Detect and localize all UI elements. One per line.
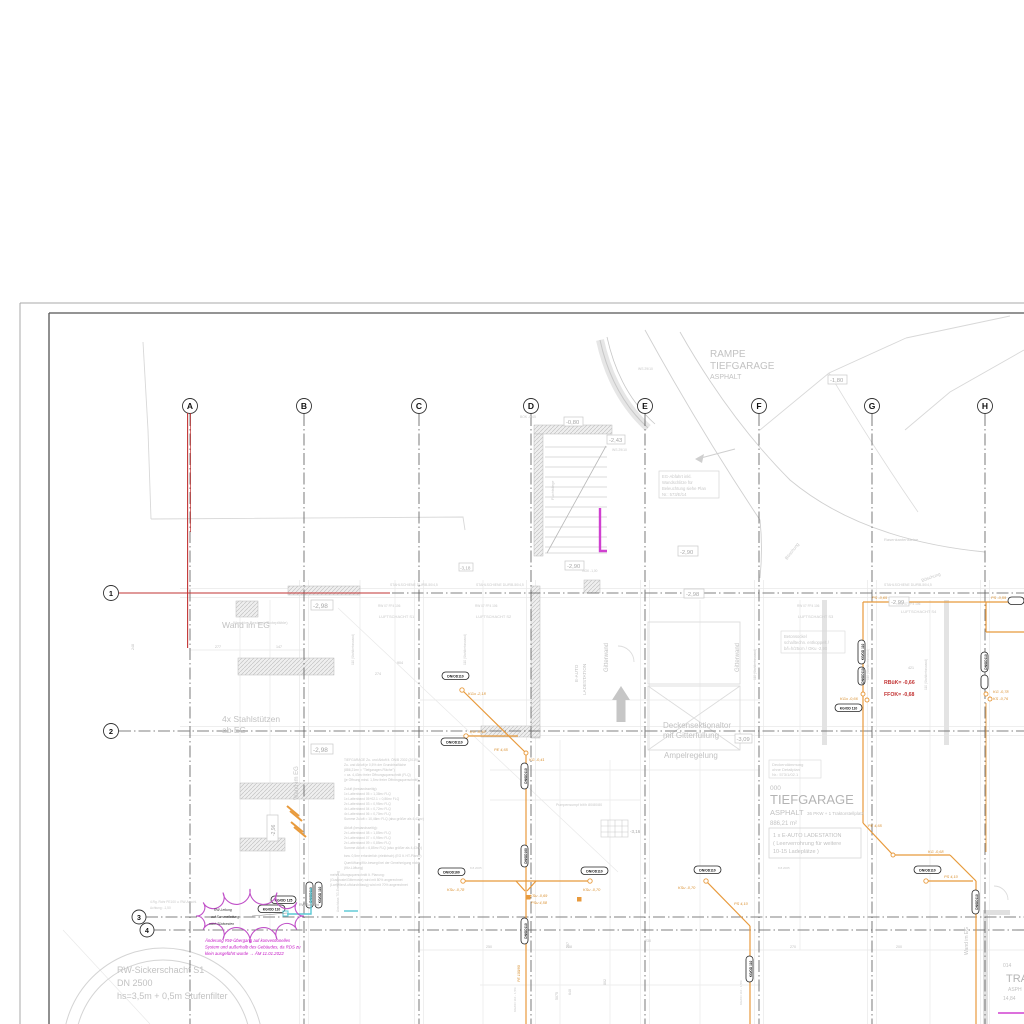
- svg-text:250: 250: [486, 945, 492, 949]
- svg-text:RW 07 FF4 106: RW 07 FF4 106: [475, 604, 498, 608]
- grating-elevation: -3,16: [630, 829, 641, 834]
- svg-text:421: 421: [908, 666, 914, 670]
- svg-text:277: 277: [215, 645, 221, 649]
- svg-text:Böschung: Böschung: [921, 571, 942, 583]
- svg-text:-0,80: -0,80: [566, 420, 579, 426]
- construction-lines: [63, 580, 1024, 1024]
- svg-text:PSu 4,58: PSu 4,58: [531, 900, 548, 905]
- svg-text:KG/OD 110 - 1,5%: KG/OD 110 - 1,5%: [739, 980, 743, 1005]
- svg-text:DN/OD110: DN/OD110: [447, 675, 464, 679]
- svg-text:PS -0,59: PS -0,59: [991, 595, 1007, 600]
- svg-text:110 (Stahlbetonwand): 110 (Stahlbetonwand): [753, 649, 757, 680]
- revision-note: Änderung RW-Übergang auf konventionelles…: [204, 938, 301, 956]
- label-rampe-3: ASPHALT: [710, 374, 742, 381]
- svg-text:-2,98: -2,98: [313, 747, 328, 754]
- svg-text:nach Südwesten: nach Südwesten: [209, 922, 234, 926]
- svg-text:Nr.: 573/E/14: Nr.: 573/E/14: [662, 492, 687, 497]
- label-luftschacht-s1: LUFTSCHACHT S1: [379, 614, 415, 619]
- label-pumpensumpf: Pumpensumpf b/t/h 80/80/80: [556, 803, 602, 807]
- grid-axis-4: 4: [145, 928, 149, 935]
- svg-text:Zuluft (bestandsseitig):: Zuluft (bestandsseitig):: [344, 787, 377, 791]
- svg-text:8.8.2005: 8.8.2005: [778, 866, 790, 870]
- label-eauto-rot1: E-AUTO: [574, 664, 579, 682]
- svg-text:KG/OD 110 - 1,5%: KG/OD 110 - 1,5%: [513, 987, 517, 1012]
- svg-text:PS 4,10: PS 4,10: [944, 874, 959, 879]
- floor-grating: [601, 820, 628, 837]
- svg-text:DN/OD110: DN/OD110: [919, 869, 936, 873]
- ramp-direction-arrow: [695, 454, 704, 463]
- svg-text:PE 4,65: PE 4,65: [494, 747, 509, 752]
- svg-text:RW 07 FF4 106: RW 07 FF4 106: [898, 602, 921, 606]
- svg-text:b/l=h/25cm / OKu -2,90: b/l=h/25cm / OKu -2,90: [784, 646, 828, 651]
- svg-text:(Kfz-Lüftung): (Kfz-Lüftung): [344, 866, 363, 870]
- room014-name: TRA: [1006, 973, 1024, 985]
- svg-text:Beleuchtung siehe Plan: Beleuchtung siehe Plan: [662, 486, 707, 491]
- svg-text:-2,96: -2,96: [271, 824, 277, 836]
- room-surface: ASPHALT: [770, 808, 804, 817]
- svg-text:110 (Stahlbetonwand): 110 (Stahlbetonwand): [924, 659, 928, 690]
- label-bestand: Wand im Bestand (Bohrpfähle): [233, 620, 288, 625]
- svg-text:Summe Zuluft = 10,46m² FLQ (al: Summe Zuluft = 10,46m² FLQ (also größer …: [344, 817, 424, 821]
- label-rampe-2: TIEFGARAGE: [710, 361, 775, 372]
- svg-text:PE 100/90: PE 100/90: [517, 965, 521, 982]
- svg-text:DN/OD110: DN/OD110: [975, 894, 979, 910]
- label-rampe-1: RAMPE: [710, 349, 746, 360]
- svg-text:Wandschlitze für: Wandschlitze für: [662, 480, 693, 485]
- tor-2: mit Gitterfüllung: [663, 731, 719, 740]
- label-sickerschacht-1: RW-Sickerschacht S1: [117, 965, 204, 975]
- svg-text:707: 707: [566, 942, 570, 948]
- svg-text:(886,21m² = "Tiefgaragen-Fläch: (886,21m² = "Tiefgaragen-Fläche"): [344, 768, 395, 772]
- svg-text:-2,90: -2,90: [567, 564, 580, 570]
- svg-text:270: 270: [790, 945, 796, 949]
- svg-text:TIEFGARAGE Zu- und Abluft lt.: TIEFGARAGE Zu- und Abluft lt. ÖN/B 2302 …: [344, 758, 419, 762]
- eauto-3: 10-15 Ladeplätze ): [773, 849, 819, 855]
- svg-text:802: 802: [603, 979, 607, 985]
- room-area: 886,21 m²: [770, 821, 797, 827]
- svg-text:-1,80: -1,80: [830, 378, 843, 384]
- svg-text:KG/OD 110: KG/OD 110: [749, 961, 753, 978]
- svg-text:PS -0,65: PS -0,65: [872, 595, 888, 600]
- svg-text:RW-Leitung: RW-Leitung: [214, 908, 232, 912]
- svg-text:RW 07 FF4 106: RW 07 FF4 106: [378, 604, 401, 608]
- svg-text:WS 29/10: WS 29/10: [638, 367, 653, 371]
- svg-text:KG/OD 110: KG/OD 110: [263, 908, 281, 912]
- svg-text:274: 274: [375, 672, 381, 676]
- eauto-1: 1 x E-AUTO LADESTATION: [773, 833, 841, 839]
- grid-axis-g: G: [869, 401, 876, 411]
- svg-text:Abluft (bestandsseitig):: Abluft (bestandsseitig):: [344, 826, 378, 830]
- label-wand-eg-rot: Wand im EG: [294, 766, 300, 800]
- room014-area: 14,84: [1003, 996, 1016, 1002]
- svg-text:2x Lattenband 03 = 0,95m² FLQ: 2x Lattenband 03 = 0,95m² FLQ: [344, 802, 391, 806]
- svg-text:Querlüftung/Kfz-bewegt bei der: Querlüftung/Kfz-bewegt bei der Genehmigu…: [344, 861, 419, 865]
- svg-text:KG -0,49: KG -0,49: [470, 729, 486, 734]
- svg-text:Nr.: 573/1/02.1: Nr.: 573/1/02.1: [772, 772, 799, 777]
- svg-text:RBüK= -0,66: RBüK= -0,66: [884, 680, 915, 686]
- svg-text:-3,09: -3,09: [737, 737, 750, 743]
- svg-text:EG-Abfahrt inkl.: EG-Abfahrt inkl.: [662, 474, 692, 479]
- room014-num: 014: [1003, 963, 1012, 969]
- room014-surface: ASPH: [1008, 987, 1022, 993]
- eauto-2: ( Leerverrohrung für weitere: [773, 841, 841, 847]
- svg-text:1x Lattenband 05 = 1,38m² FLQ: 1x Lattenband 05 = 1,38m² FLQ: [344, 792, 391, 796]
- svg-text:Summe Abluft = 6,85m² FLQ (als: Summe Abluft = 6,85m² FLQ (also größer a…: [344, 846, 422, 850]
- grid-axis-1: 1: [109, 589, 113, 598]
- label-fluchtstiege: Fluchtstiege: [551, 481, 555, 500]
- svg-text:5075: 5075: [555, 992, 559, 1000]
- svg-text:2x Lattenband 09 = 0,85m² FLQ: 2x Lattenband 09 = 0,85m² FLQ: [344, 841, 391, 845]
- floorplan-canvas: -3,16 A B C D E F G H 1 2 3 4: [0, 0, 1024, 1024]
- svg-text:230: 230: [645, 939, 651, 943]
- grid-axis-b: B: [301, 401, 307, 411]
- svg-text:2x Lattenband 07 = 0,95m² FLQ: 2x Lattenband 07 = 0,95m² FLQ: [344, 836, 391, 840]
- walls: [236, 425, 1010, 1024]
- sickerschacht-circle: [63, 948, 263, 1024]
- svg-text:KG -0,68: KG -0,68: [928, 849, 944, 854]
- tor-1: Deckensektionaltor: [663, 721, 731, 730]
- svg-text:4x Lattenband 04 = 0,72m² FLQ: 4x Lattenband 04 = 0,72m² FLQ: [344, 807, 391, 811]
- svg-text:KSu -0,70: KSu -0,70: [583, 887, 601, 892]
- svg-text:DN/OD110: DN/OD110: [446, 741, 463, 745]
- label-gitterwand-r: Gitterwand: [735, 643, 741, 672]
- svg-text:KG/OD 110: KG/OD 110: [318, 887, 322, 904]
- svg-text:DN/OD110: DN/OD110: [524, 768, 528, 784]
- svg-text:Zu- und Abluft je 0,5% der Gru: Zu- und Abluft je 0,5% der Grundrissfläc…: [344, 763, 406, 767]
- svg-text:(Gussroste/Gitterroste) wird m: (Gussroste/Gitterroste) wird mit 80% ang…: [330, 878, 403, 882]
- label-luftschacht-s4: LUFTSCHACHT S4: [901, 609, 937, 614]
- svg-text:STAHLSCHIENE DU/RB-50/4,5: STAHLSCHIENE DU/RB-50/4,5: [476, 583, 524, 587]
- svg-text:bzw. 0,5m³ erforderlich (elekt: bzw. 0,5m³ erforderlich (elektrisch) (EG…: [344, 854, 422, 858]
- svg-text:KGu -0,66: KGu -0,66: [840, 696, 859, 701]
- label-rw-schacht: RW-Schacht: [299, 903, 319, 907]
- label-sickerschacht-2: DN 2500: [117, 978, 153, 988]
- svg-text:RW 07 FF4 106: RW 07 FF4 106: [797, 604, 820, 608]
- label-luftschacht-s2: LUFTSCHACHT S2: [476, 614, 512, 619]
- svg-text:BOK -0,45: BOK -0,45: [520, 415, 536, 419]
- svg-text:-2,90: -2,90: [680, 550, 693, 556]
- svg-text:248: 248: [131, 644, 135, 650]
- grid-axis-c: C: [416, 401, 422, 411]
- svg-text:KS -0,76: KS -0,76: [993, 696, 1009, 701]
- red-annotations: RBüK= -0,66 FFOK= -0,68: [884, 680, 915, 698]
- room-number: 000: [770, 785, 781, 792]
- label-rasenkante: Rasenkantensteine: [884, 537, 919, 542]
- svg-text:147: 147: [276, 645, 282, 649]
- svg-text:DN/OD110: DN/OD110: [586, 870, 603, 874]
- svg-text:8.8.2005: 8.8.2005: [470, 866, 482, 870]
- label-eauto-rot2: LADESTATION: [582, 664, 587, 695]
- label-luftschacht-s3: LUFTSCHACHT S3: [798, 614, 834, 619]
- svg-text:200: 200: [896, 945, 902, 949]
- grid-axis-f: F: [756, 401, 761, 411]
- svg-text:PE 4,65: PE 4,65: [868, 823, 883, 828]
- svg-text:-2,43: -2,43: [609, 438, 622, 444]
- svg-text:STAHLSCHIENE DU/RB-50/4,5: STAHLSCHIENE DU/RB-50/4,5: [884, 583, 932, 587]
- svg-text:DN/OD160: DN/OD160: [443, 871, 460, 875]
- svg-text:DN/OD110: DN/OD110: [861, 668, 865, 684]
- svg-text:-2,98: -2,98: [686, 592, 699, 598]
- svg-text:-2,98: -2,98: [313, 603, 328, 610]
- svg-text:KSu -0,78: KSu -0,78: [447, 887, 465, 892]
- svg-text:Achtung: -1,50: Achtung: -1,50: [150, 906, 171, 910]
- svg-text:DN/OD110: DN/OD110: [984, 654, 988, 670]
- site-boundary-lines: [143, 316, 1024, 530]
- svg-text:STAHLSCHIENE DU/RB-50/4,5: STAHLSCHIENE DU/RB-50/4,5: [390, 583, 438, 587]
- svg-text:auf Sammelleitung: auf Sammelleitung: [211, 915, 239, 919]
- grid-axis-h: H: [982, 401, 988, 411]
- grid-axis-e: E: [642, 401, 648, 411]
- svg-text:System und außerhalb des Gebäu: System und außerhalb des Gebäudes, da RD…: [205, 945, 301, 950]
- label-sickerschacht-3: hs=3,5m + 0,5m Stufenfilter: [117, 991, 228, 1001]
- svg-text:640: 640: [568, 989, 572, 995]
- svg-text:DN/OD110: DN/OD110: [524, 923, 528, 939]
- svg-text:-3,18: -3,18: [460, 566, 471, 571]
- drive-direction-arrow: [612, 686, 630, 722]
- ramp-curves: [600, 330, 985, 578]
- svg-text:KSu -0,70: KSu -0,70: [678, 885, 696, 890]
- svg-text:DN/OD110: DN/OD110: [699, 869, 716, 873]
- room-cars: 36 PKW + 1 Traktorstellplatz: [807, 811, 865, 816]
- svg-text:(Lamellen/Luftdurchlässig) wir: (Lamellen/Luftdurchlässig) wird mit 70% …: [330, 883, 408, 887]
- room-name: TIEFGARAGE: [770, 792, 854, 807]
- svg-text:= ca. 4,43m² freier Öffnungsqu: = ca. 4,43m² freier Öffnungsquerschnitt …: [344, 773, 411, 777]
- svg-text:110 (Stahlbetonwand): 110 (Stahlbetonwand): [463, 634, 467, 665]
- svg-text:4.Rg. Rohr PE100 u. RW-Anschl.: 4.Rg. Rohr PE100 u. RW-Anschl.: [150, 900, 197, 904]
- svg-text:904: 904: [397, 661, 403, 665]
- svg-text:klein ausgeführt wurde → ÄM 11: klein ausgeführt wurde → ÄM 11.01.2022: [205, 951, 284, 956]
- tor-3: Ampelregelung: [664, 751, 718, 760]
- pipe-gray-notes: KG/OD 110 - 1,5% KG/OD 110 - 1,5% 8.8.20…: [470, 866, 790, 1012]
- svg-text:WS 29/10: WS 29/10: [612, 448, 627, 452]
- svg-text:KSu -0,69: KSu -0,69: [530, 893, 548, 898]
- svg-text:FFOK= -0,68: FFOK= -0,68: [884, 692, 915, 698]
- svg-text:KG -0,41: KG -0,41: [529, 757, 545, 762]
- grid-axis-3: 3: [137, 915, 141, 922]
- svg-text:DN/OD160: DN/OD160: [524, 848, 528, 864]
- label-stuetzen-1: 4x Stahlstützen: [222, 714, 280, 724]
- svg-text:Betonsockel: Betonsockel: [784, 634, 807, 639]
- label-wand-eg-rot2: Wand im EG: [964, 927, 970, 955]
- svg-text:mehr Lüftungsquerschnitt lt. P: mehr Lüftungsquerschnitt lt. Planung:: [330, 873, 385, 877]
- label-stuetzen-2: ab EG: [222, 725, 246, 735]
- svg-text:(je Öffnung mind. 1,5m² freier: (je Öffnung mind. 1,5m² freier Öffnungsq…: [344, 778, 418, 782]
- grid-axis-2: 2: [109, 727, 113, 736]
- svg-text:Änderung RW-Übergang auf konve: Änderung RW-Übergang auf konventionelles: [204, 938, 291, 943]
- svg-text:110 (Stahlbetonwand): 110 (Stahlbetonwand): [351, 634, 355, 665]
- cloud-note: RW-Leitung auf Sammelleitung nach Südwes…: [209, 908, 239, 926]
- svg-text:mOK -1,00: mOK -1,00: [582, 569, 598, 573]
- grid-axis-d: D: [528, 401, 534, 411]
- svg-text:1x Lattenband 05+02.1 = 0,86m²: 1x Lattenband 05+02.1 = 0,86m² FLQ: [344, 797, 400, 801]
- svg-text:PS 4,10: PS 4,10: [734, 901, 749, 906]
- svg-text:4x Lattenband 06 = 0,70m² FLQ: 4x Lattenband 06 = 0,70m² FLQ: [344, 812, 391, 816]
- svg-text:Böschung: Böschung: [784, 541, 801, 560]
- svg-text:KG/OD 110: KG/OD 110: [840, 707, 858, 711]
- svg-text:KG -0,78: KG -0,78: [993, 689, 1009, 694]
- grid-axis-a: A: [187, 401, 193, 411]
- label-gitterwand-l: Gitterwand: [604, 643, 610, 672]
- svg-text:KGu -2,18: KGu -2,18: [468, 691, 487, 696]
- svg-text:110 (Stahlbetonwand): 110 (Stahlbetonwand): [866, 649, 870, 680]
- svg-text:schalltechn. entkoppelt /: schalltechn. entkoppelt /: [784, 640, 830, 645]
- svg-text:KG/OD 110: KG/OD 110: [861, 644, 865, 661]
- svg-text:2x Lattenband 08 = 1,85m² FLQ: 2x Lattenband 08 = 1,85m² FLQ: [344, 831, 391, 835]
- ventilation-note-block: TIEFGARAGE Zu- und Abluft lt. ÖN/B 2302 …: [330, 758, 424, 887]
